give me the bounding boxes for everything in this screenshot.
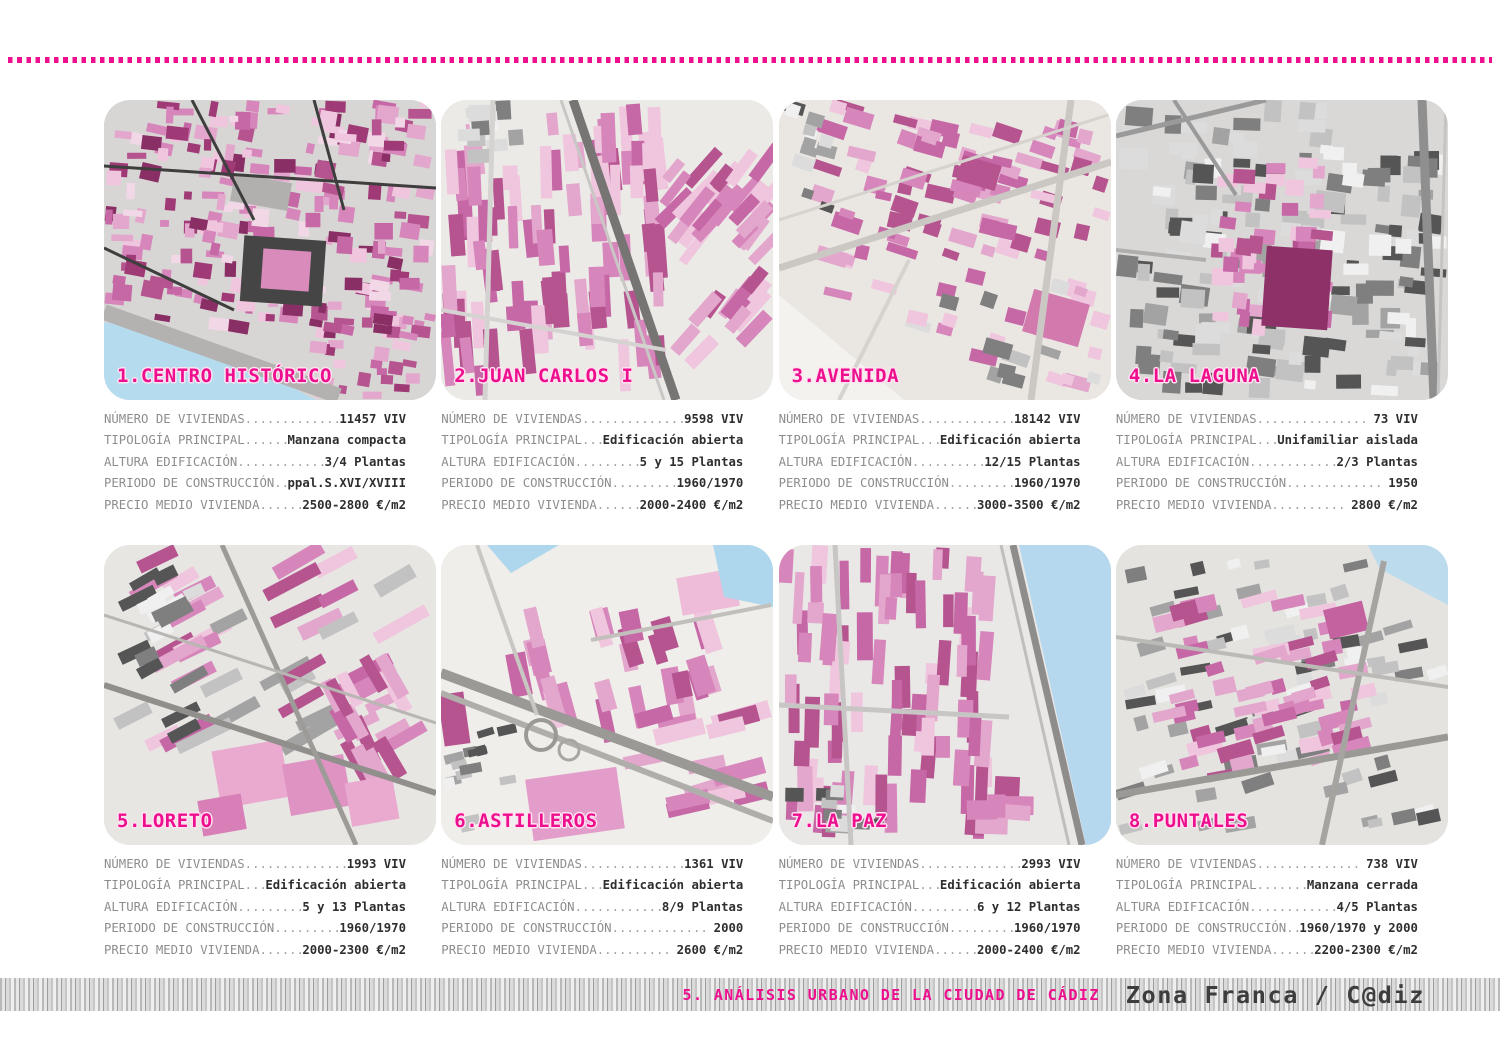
stat-line: PRECIO MEDIO VIVIENDA......2500-2800 €/m… <box>104 495 406 516</box>
stat-label: PRECIO MEDIO VIVIENDA <box>104 940 259 961</box>
stat-line: ALTURA EDIFICACIÓN.........5 y 13 Planta… <box>104 897 406 918</box>
stat-value: 5 y 13 Plantas <box>302 897 406 918</box>
stat-label: ALTURA EDIFICACIÓN <box>779 897 912 918</box>
stat-leader-dots: ...... <box>1271 940 1314 961</box>
stat-label: NÚMERO DE VIVIENDAS <box>104 409 245 430</box>
stat-label: TIPOLOGÍA PRINCIPAL <box>104 875 245 896</box>
stat-line: PERIODO DE CONSTRUCCIÓN.........1960/197… <box>779 918 1081 939</box>
stat-label: PERIODO DE CONSTRUCCIÓN <box>779 918 949 939</box>
stat-label: TIPOLOGÍA PRINCIPAL <box>441 875 582 896</box>
aerial-map-astilleros: 6.ASTILLEROS <box>441 545 773 845</box>
stat-line: PRECIO MEDIO VIVIENDA......2000-2400 €/m… <box>441 495 743 516</box>
stat-line: PERIODO DE CONSTRUCCIÓN..ppal.S.XVI/XVII… <box>104 473 406 494</box>
district-title: 8.PUNTALES <box>1129 810 1248 832</box>
stat-leader-dots: ............. <box>919 409 1014 430</box>
stat-leader-dots: .. <box>1286 918 1299 939</box>
stat-value: 11457 VIV <box>339 409 406 430</box>
stat-value: 2993 VIV <box>1021 854 1080 875</box>
stat-line: TIPOLOGÍA PRINCIPAL....Edificación abier… <box>441 875 743 896</box>
stat-leader-dots: .............. <box>582 854 684 875</box>
stat-leader-dots: ......... <box>237 897 302 918</box>
stat-line: PRECIO MEDIO VIVIENDA......3000-3500 €/m… <box>779 495 1081 516</box>
district-panel-la-paz: 7.LA PAZ NÚMERO DE VIVIENDAS............… <box>779 545 1111 961</box>
stat-value: Edificación abierta <box>265 875 406 896</box>
district-panel-puntales: 8.PUNTALES NÚMERO DE VIVIENDAS..........… <box>1116 545 1448 961</box>
stat-leader-dots: .......... <box>1271 495 1351 516</box>
stat-line: TIPOLOGÍA PRINCIPAL....Edificación abier… <box>104 875 406 896</box>
aerial-photo-graphic <box>441 545 773 845</box>
stat-leader-dots: .... <box>582 875 603 896</box>
stat-label: PRECIO MEDIO VIVIENDA <box>441 940 596 961</box>
stat-line: TIPOLOGÍA PRINCIPAL....Edificación abier… <box>779 430 1081 451</box>
district-title: 2.JUAN CARLOS I <box>454 365 633 387</box>
stat-value: 1361 VIV <box>684 854 743 875</box>
stat-value: 4/5 Plantas <box>1336 897 1417 918</box>
top-dotted-rule <box>8 57 1492 63</box>
footer-brand: Zona Franca / C@diz <box>1126 981 1425 1009</box>
stat-leader-dots: .... <box>919 430 940 451</box>
stat-value: 1950 <box>1388 473 1418 494</box>
district-grid: 1.CENTRO HISTÓRICO NÚMERO DE VIVIENDAS..… <box>104 100 1448 961</box>
district-panel-loreto: 5.LORETO NÚMERO DE VIVIENDAS............… <box>104 545 436 961</box>
stat-label: NÚMERO DE VIVIENDAS <box>779 409 920 430</box>
district-stats: NÚMERO DE VIVIENDAS.............18142 VI… <box>779 409 1081 516</box>
stat-line: NÚMERO DE VIVIENDAS..............1361 VI… <box>441 854 743 875</box>
aerial-map-puntales: 8.PUNTALES <box>1116 545 1448 845</box>
stat-label: PERIODO DE CONSTRUCCIÓN <box>1116 918 1286 939</box>
stat-line: PERIODO DE CONSTRUCCIÓN..1960/1970 y 200… <box>1116 918 1418 939</box>
stat-leader-dots: .... <box>919 875 940 896</box>
stat-value: Manzana compacta <box>288 430 406 451</box>
stat-label: PRECIO MEDIO VIVIENDA <box>1116 940 1271 961</box>
stat-label: TIPOLOGÍA PRINCIPAL <box>441 430 582 451</box>
stat-leader-dots: ......... <box>274 918 339 939</box>
stat-label: PRECIO MEDIO VIVIENDA <box>104 495 259 516</box>
stat-value: 6 y 12 Plantas <box>977 897 1081 918</box>
stat-value: 1960/1970 y 2000 <box>1299 918 1417 939</box>
aerial-map-la-laguna: 4.LA LAGUNA <box>1116 100 1448 400</box>
stat-label: PRECIO MEDIO VIVIENDA <box>779 940 934 961</box>
stat-leader-dots: ......... <box>575 452 640 473</box>
stat-value: 5 y 15 Plantas <box>640 452 744 473</box>
aerial-map-la-paz: 7.LA PAZ <box>779 545 1111 845</box>
stat-value: 2600 €/m2 <box>677 940 744 961</box>
stat-label: NÚMERO DE VIVIENDAS <box>779 854 920 875</box>
stat-value: 1960/1970 <box>1014 473 1081 494</box>
stat-line: PERIODO DE CONSTRUCCIÓN.........1960/197… <box>779 473 1081 494</box>
aerial-map-juan-carlos-i: 2.JUAN CARLOS I <box>441 100 773 400</box>
stat-value: Edificación abierta <box>603 430 744 451</box>
stat-value: 1960/1970 <box>339 918 406 939</box>
stat-leader-dots: ...... <box>934 940 977 961</box>
stat-label: PERIODO DE CONSTRUCCIÓN <box>1116 473 1286 494</box>
district-panel-la-laguna: 4.LA LAGUNA NÚMERO DE VIVIENDAS.........… <box>1116 100 1448 516</box>
stat-line: NÚMERO DE VIVIENDAS..............2993 VI… <box>779 854 1081 875</box>
stat-value: 1960/1970 <box>1014 918 1081 939</box>
stat-value: 2000 <box>714 918 744 939</box>
district-panel-juan-carlos-i: 2.JUAN CARLOS I NÚMERO DE VIVIENDAS.....… <box>441 100 773 516</box>
aerial-map-loreto: 5.LORETO <box>104 545 436 845</box>
district-panel-astilleros: 6.ASTILLEROS NÚMERO DE VIVIENDAS........… <box>441 545 773 961</box>
stat-label: TIPOLOGÍA PRINCIPAL <box>1116 430 1257 451</box>
footer-section-label: 5. ANÁLISIS URBANO DE LA CIUDAD DE CÁDIZ <box>683 986 1100 1004</box>
stat-value: 18142 VIV <box>1014 409 1081 430</box>
stat-line: ALTURA EDIFICACIÓN............8/9 Planta… <box>441 897 743 918</box>
stat-label: PRECIO MEDIO VIVIENDA <box>779 495 934 516</box>
stat-label: PERIODO DE CONSTRUCCIÓN <box>441 918 611 939</box>
stat-label: PERIODO DE CONSTRUCCIÓN <box>779 473 949 494</box>
district-panel-avenida: 3.AVENIDA NÚMERO DE VIVIENDAS...........… <box>779 100 1111 516</box>
stat-value: Edificación abierta <box>940 430 1081 451</box>
stat-value: 2000-2400 €/m2 <box>977 940 1081 961</box>
stat-line: PRECIO MEDIO VIVIENDA......2000-2300 €/m… <box>104 940 406 961</box>
stat-label: NÚMERO DE VIVIENDAS <box>1116 409 1257 430</box>
district-stats: NÚMERO DE VIVIENDAS...............73 VIV… <box>1116 409 1418 516</box>
stat-leader-dots: ......... <box>612 473 677 494</box>
stat-value: ppal.S.XVI/XVIII <box>288 473 406 494</box>
aerial-photo-graphic <box>104 545 436 845</box>
district-stats: NÚMERO DE VIVIENDAS.............11457 VI… <box>104 409 406 516</box>
stat-value: 8/9 Plantas <box>662 897 743 918</box>
district-panel-centro-historico: 1.CENTRO HISTÓRICO NÚMERO DE VIVIENDAS..… <box>104 100 436 516</box>
stat-label: TIPOLOGÍA PRINCIPAL <box>779 875 920 896</box>
aerial-map-centro-historico: 1.CENTRO HISTÓRICO <box>104 100 436 400</box>
stat-label: NÚMERO DE VIVIENDAS <box>441 409 582 430</box>
stat-leader-dots: ............ <box>237 452 324 473</box>
aerial-photo-graphic <box>779 545 1111 845</box>
stat-line: PERIODO DE CONSTRUCCIÓN.............2000 <box>441 918 743 939</box>
stat-line: ALTURA EDIFICACIÓN............2/3 Planta… <box>1116 452 1418 473</box>
stat-label: PRECIO MEDIO VIVIENDA <box>1116 495 1271 516</box>
stat-leader-dots: ............. <box>612 918 714 939</box>
stat-line: ALTURA EDIFICACIÓN.........5 y 15 Planta… <box>441 452 743 473</box>
aerial-photo-graphic <box>779 100 1111 400</box>
stat-label: PERIODO DE CONSTRUCCIÓN <box>104 473 274 494</box>
stat-line: PRECIO MEDIO VIVIENDA......2000-2400 €/m… <box>779 940 1081 961</box>
stat-label: ALTURA EDIFICACIÓN <box>441 897 574 918</box>
stat-leader-dots: .............. <box>919 854 1021 875</box>
stat-line: ALTURA EDIFICACIÓN.........6 y 12 Planta… <box>779 897 1081 918</box>
stat-leader-dots: ....... <box>1257 875 1307 896</box>
stat-line: PRECIO MEDIO VIVIENDA..........2600 €/m2 <box>441 940 743 961</box>
district-stats: NÚMERO DE VIVIENDAS..............738 VIV… <box>1116 854 1418 961</box>
stat-label: TIPOLOGÍA PRINCIPAL <box>104 430 245 451</box>
stat-leader-dots: ............ <box>1249 452 1336 473</box>
stat-line: TIPOLOGÍA PRINCIPAL...Unifamiliar aislad… <box>1116 430 1418 451</box>
district-title: 7.LA PAZ <box>792 810 888 832</box>
stat-leader-dots: .... <box>245 875 266 896</box>
stat-value: Unifamiliar aislada <box>1277 430 1418 451</box>
stat-label: TIPOLOGÍA PRINCIPAL <box>1116 875 1257 896</box>
stat-line: TIPOLOGÍA PRINCIPAL......Manzana compact… <box>104 430 406 451</box>
stat-leader-dots: ...... <box>597 495 640 516</box>
stat-leader-dots: .... <box>582 430 603 451</box>
stat-line: TIPOLOGÍA PRINCIPAL....Edificación abier… <box>441 430 743 451</box>
stat-value: Edificación abierta <box>603 875 744 896</box>
stat-leader-dots: ............ <box>1249 897 1336 918</box>
stat-label: ALTURA EDIFICACIÓN <box>104 897 237 918</box>
stat-leader-dots: ............ <box>575 897 662 918</box>
stat-line: NÚMERO DE VIVIENDAS.............11457 VI… <box>104 409 406 430</box>
district-title: 4.LA LAGUNA <box>1129 365 1260 387</box>
stat-leader-dots: ... <box>1257 430 1278 451</box>
stat-line: TIPOLOGÍA PRINCIPAL....Edificación abier… <box>779 875 1081 896</box>
stat-label: NÚMERO DE VIVIENDAS <box>1116 854 1257 875</box>
district-stats: NÚMERO DE VIVIENDAS..............1993 VI… <box>104 854 406 961</box>
stat-line: NÚMERO DE VIVIENDAS..............9598 VI… <box>441 409 743 430</box>
footer-bar: 5. ANÁLISIS URBANO DE LA CIUDAD DE CÁDIZ… <box>0 978 1500 1011</box>
stat-line: PERIODO DE CONSTRUCCIÓN.............1950 <box>1116 473 1418 494</box>
stat-leader-dots: ......... <box>949 918 1014 939</box>
stat-value: 12/15 Plantas <box>984 452 1080 473</box>
stat-label: ALTURA EDIFICACIÓN <box>1116 452 1249 473</box>
stat-leader-dots: ...... <box>259 940 302 961</box>
stat-value: 1993 VIV <box>347 854 406 875</box>
stat-line: NÚMERO DE VIVIENDAS...............73 VIV <box>1116 409 1418 430</box>
stat-label: ALTURA EDIFICACIÓN <box>441 452 574 473</box>
stat-line: PRECIO MEDIO VIVIENDA..........2800 €/m2 <box>1116 495 1418 516</box>
aerial-photo-graphic <box>1116 100 1448 400</box>
district-stats: NÚMERO DE VIVIENDAS..............1361 VI… <box>441 854 743 961</box>
stat-line: ALTURA EDIFICACIÓN..........12/15 Planta… <box>779 452 1081 473</box>
stat-leader-dots: .......... <box>597 940 677 961</box>
stat-leader-dots: .............. <box>1257 854 1367 875</box>
district-title: 6.ASTILLEROS <box>454 810 597 832</box>
stat-leader-dots: .......... <box>912 452 984 473</box>
stat-leader-dots: ...... <box>934 495 977 516</box>
stat-value: 738 VIV <box>1366 854 1418 875</box>
stat-label: NÚMERO DE VIVIENDAS <box>441 854 582 875</box>
stat-value: Edificación abierta <box>940 875 1081 896</box>
stat-label: ALTURA EDIFICACIÓN <box>1116 897 1249 918</box>
stat-leader-dots: ......... <box>949 473 1014 494</box>
stat-value: Manzana cerrada <box>1307 875 1418 896</box>
stat-label: ALTURA EDIFICACIÓN <box>779 452 912 473</box>
district-title: 5.LORETO <box>117 810 213 832</box>
stat-line: ALTURA EDIFICACIÓN............4/5 Planta… <box>1116 897 1418 918</box>
stat-leader-dots: ......... <box>912 897 977 918</box>
stat-leader-dots: ............... <box>1257 409 1374 430</box>
stat-label: PERIODO DE CONSTRUCCIÓN <box>441 473 611 494</box>
aerial-photo-graphic <box>1116 545 1448 845</box>
stat-value: 2000-2400 €/m2 <box>640 495 744 516</box>
stat-value: 73 VIV <box>1373 409 1417 430</box>
stat-label: PRECIO MEDIO VIVIENDA <box>441 495 596 516</box>
aerial-photo-graphic <box>104 100 436 400</box>
stat-leader-dots: ...... <box>245 430 288 451</box>
stat-leader-dots: .............. <box>582 409 684 430</box>
stat-label: NÚMERO DE VIVIENDAS <box>104 854 245 875</box>
aerial-map-avenida: 3.AVENIDA <box>779 100 1111 400</box>
stat-leader-dots: ............. <box>245 409 340 430</box>
stat-line: NÚMERO DE VIVIENDAS..............1993 VI… <box>104 854 406 875</box>
stat-value: 2500-2800 €/m2 <box>302 495 406 516</box>
district-title: 3.AVENIDA <box>792 365 899 387</box>
stat-value: 3/4 Plantas <box>325 452 406 473</box>
stat-line: ALTURA EDIFICACIÓN............3/4 Planta… <box>104 452 406 473</box>
district-title: 1.CENTRO HISTÓRICO <box>117 365 332 387</box>
aerial-photo-graphic <box>441 100 773 400</box>
stat-value: 9598 VIV <box>684 409 743 430</box>
stat-line: NÚMERO DE VIVIENDAS.............18142 VI… <box>779 409 1081 430</box>
stat-value: 1960/1970 <box>677 473 744 494</box>
stat-leader-dots: ...... <box>259 495 302 516</box>
stat-line: TIPOLOGÍA PRINCIPAL.......Manzana cerrad… <box>1116 875 1418 896</box>
stat-leader-dots: .. <box>274 473 287 494</box>
stat-leader-dots: ............. <box>1286 473 1388 494</box>
stat-line: PRECIO MEDIO VIVIENDA......2200-2300 €/m… <box>1116 940 1418 961</box>
stat-label: ALTURA EDIFICACIÓN <box>104 452 237 473</box>
stat-line: NÚMERO DE VIVIENDAS..............738 VIV <box>1116 854 1418 875</box>
stat-label: TIPOLOGÍA PRINCIPAL <box>779 430 920 451</box>
stat-line: PERIODO DE CONSTRUCCIÓN.........1960/197… <box>441 473 743 494</box>
stat-value: 3000-3500 €/m2 <box>977 495 1081 516</box>
stat-line: PERIODO DE CONSTRUCCIÓN.........1960/197… <box>104 918 406 939</box>
stat-value: 2200-2300 €/m2 <box>1314 940 1418 961</box>
stat-leader-dots: .............. <box>245 854 347 875</box>
district-stats: NÚMERO DE VIVIENDAS..............2993 VI… <box>779 854 1081 961</box>
stat-value: 2/3 Plantas <box>1336 452 1417 473</box>
stat-value: 2000-2300 €/m2 <box>302 940 406 961</box>
stat-label: PERIODO DE CONSTRUCCIÓN <box>104 918 274 939</box>
stat-value: 2800 €/m2 <box>1351 495 1418 516</box>
district-stats: NÚMERO DE VIVIENDAS..............9598 VI… <box>441 409 743 516</box>
poster-page: 1.CENTRO HISTÓRICO NÚMERO DE VIVIENDAS..… <box>0 0 1500 1060</box>
